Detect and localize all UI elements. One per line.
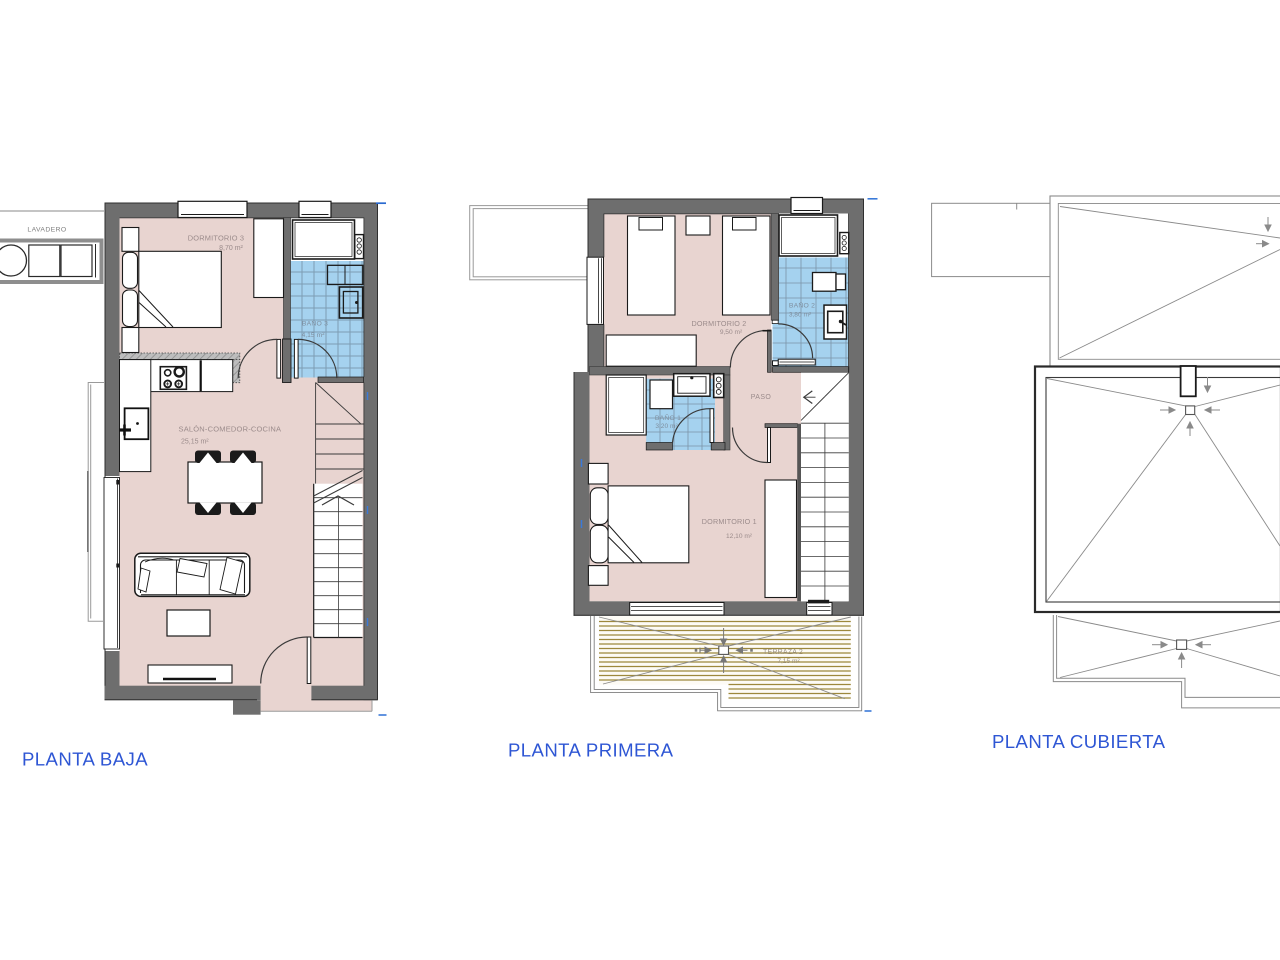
svg-text:BAÑO 1: BAÑO 1 [655,413,681,422]
svg-text:DORMITORIO 2: DORMITORIO 2 [692,319,747,328]
svg-text:PASO: PASO [751,394,772,401]
svg-text:LAVADERO: LAVADERO [27,227,66,234]
svg-text:DORMITORIO 1: DORMITORIO 1 [702,517,757,526]
svg-text:BAÑO 2: BAÑO 2 [789,301,815,310]
svg-text:3,80 m²: 3,80 m² [789,312,812,319]
svg-text:PLANTA PRIMERA: PLANTA PRIMERA [508,740,674,761]
svg-text:BAÑO 3: BAÑO 3 [302,319,328,328]
svg-text:7,15 m²: 7,15 m² [777,658,800,665]
svg-text:PLANTA BAJA: PLANTA BAJA [22,749,148,770]
svg-text:25,15 m²: 25,15 m² [181,439,209,446]
svg-text:3,20 m²: 3,20 m² [655,423,678,430]
svg-text:DORMITORIO 3: DORMITORIO 3 [188,234,244,243]
svg-text:12,10 m²: 12,10 m² [726,533,753,540]
svg-text:PLANTA CUBIERTA: PLANTA CUBIERTA [992,731,1166,752]
svg-text:4,15 m²: 4,15 m² [301,332,325,339]
svg-text:8,70 m²: 8,70 m² [219,245,243,252]
svg-text:9,50 m²: 9,50 m² [720,329,743,336]
svg-text:TERRAZA 2: TERRAZA 2 [763,649,803,656]
svg-text:SALÓN-COMEDOR-COCINA: SALÓN-COMEDOR-COCINA [179,425,282,434]
